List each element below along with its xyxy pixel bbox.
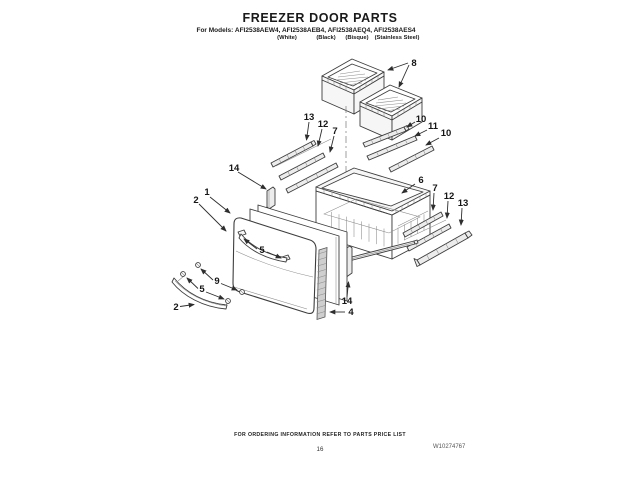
callout-13-right: 13 <box>458 198 469 209</box>
callout-2-door: 2 <box>193 195 198 206</box>
footer-note: FOR ORDERING INFORMATION REFER TO PARTS … <box>0 432 640 438</box>
callout-2-handle: 2 <box>173 302 178 313</box>
manual-page: FREEZER DOOR PARTS For Models: AFI2538AE… <box>0 0 640 480</box>
callout-12-left: 12 <box>318 119 329 130</box>
callout-1: 1 <box>204 187 210 198</box>
callout-10-b: 10 <box>441 128 452 139</box>
callout-11: 11 <box>428 121 439 132</box>
callout-8: 8 <box>411 58 416 69</box>
callout-13-left: 13 <box>304 112 315 123</box>
document-number: W10274767 <box>433 444 465 450</box>
slide-rod-left <box>276 139 331 166</box>
callout-7-right: 7 <box>432 183 437 194</box>
callout-4: 4 <box>348 307 354 318</box>
rail-part-10-lower <box>389 146 434 172</box>
page-number: 16 <box>0 446 640 453</box>
callout-7-left: 7 <box>332 126 337 137</box>
callout-6: 6 <box>418 175 423 186</box>
callout-5-handle: 5 <box>199 284 205 295</box>
exploded-parts-diagram: 8 13 12 7 10 11 10 14 1 2 6 7 12 13 5 9 … <box>0 0 640 480</box>
callout-9: 9 <box>214 276 219 287</box>
callout-14-left: 14 <box>229 163 240 174</box>
callout-12-right: 12 <box>444 191 455 202</box>
callout-10-a: 10 <box>416 114 427 125</box>
callout-14-bottom: 14 <box>342 296 353 307</box>
callout-5-door: 5 <box>259 245 265 256</box>
